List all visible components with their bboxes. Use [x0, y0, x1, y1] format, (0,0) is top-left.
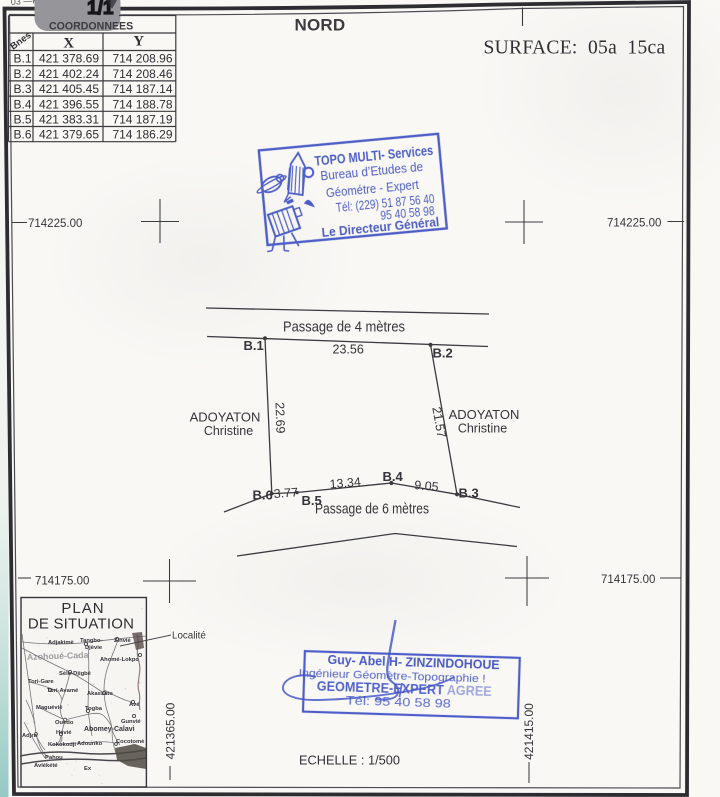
- svg-text:714175.00: 714175.00: [35, 576, 89, 588]
- svg-text:421415.00: 421415.00: [522, 703, 536, 760]
- svg-text:B.5: B.5: [302, 493, 322, 508]
- svg-text:421 383.31: 421 383.31: [39, 113, 99, 127]
- svg-text:Sèlo-Djigbé: Sèlo-Djigbé: [59, 671, 92, 677]
- svg-text:Tori-Avamé: Tori-Avamé: [47, 688, 79, 694]
- svg-text:SURFACE: 05a 15ca: SURFACE: 05a 15ca: [484, 38, 666, 59]
- svg-text:421 378.69: 421 378.69: [39, 52, 99, 66]
- svg-text:Adounko: Adounko: [77, 741, 103, 747]
- svg-text:Ouèdo: Ouèdo: [55, 720, 74, 726]
- svg-text:PLAN: PLAN: [61, 600, 104, 617]
- svg-text:Togba: Togba: [85, 706, 103, 712]
- svg-text:Adjakimè: Adjakimè: [48, 640, 75, 646]
- svg-text:X: X: [64, 36, 75, 52]
- svg-text:9.05: 9.05: [414, 478, 440, 494]
- svg-text:B.2: B.2: [14, 67, 32, 81]
- svg-text:Akassato: Akassato: [87, 691, 113, 697]
- svg-text:Ahomé-Lokpo: Ahomé-Lokpo: [100, 657, 139, 663]
- svg-text:ADOYATON: ADOYATON: [449, 407, 520, 422]
- svg-text:B.1: B.1: [14, 52, 32, 66]
- svg-text:Christine: Christine: [204, 424, 253, 438]
- svg-text:421 402.24: 421 402.24: [39, 67, 99, 81]
- svg-text:B.5: B.5: [14, 113, 32, 127]
- svg-text:B.3: B.3: [459, 486, 479, 501]
- svg-text:714 187.19: 714 187.19: [112, 113, 172, 127]
- svg-text:3.77: 3.77: [273, 485, 298, 501]
- svg-text:Y: Y: [134, 34, 145, 50]
- svg-text:ADOYATON: ADOYATON: [190, 410, 261, 425]
- svg-text:DE SITUATION: DE SITUATION: [28, 616, 134, 633]
- svg-text:22.69: 22.69: [272, 402, 287, 434]
- svg-text:714 188.78: 714 188.78: [112, 97, 172, 111]
- svg-text:714 187.14: 714 187.14: [112, 82, 172, 96]
- svg-text:421 396.55: 421 396.55: [39, 97, 99, 111]
- svg-text:Gunvié: Gunvié: [121, 719, 141, 725]
- svg-text:Hévié: Hévié: [56, 730, 72, 736]
- svg-text:Adjra: Adjra: [22, 733, 38, 739]
- svg-text:ECHELLE : 1/500: ECHELLE : 1/500: [299, 753, 400, 768]
- svg-text:NORD: NORD: [295, 16, 346, 35]
- svg-text:Christine: Christine: [458, 422, 507, 436]
- svg-text:13.34: 13.34: [329, 475, 361, 492]
- svg-text:714225.00: 714225.00: [607, 218, 661, 230]
- svg-text:714 208.96: 714 208.96: [112, 52, 172, 66]
- svg-text:B.3: B.3: [14, 82, 32, 96]
- svg-text:714 208.46: 714 208.46: [112, 67, 172, 81]
- svg-text:Kokokodji: Kokokodji: [48, 742, 76, 748]
- svg-text:714225.00: 714225.00: [28, 218, 82, 230]
- svg-text:B.4: B.4: [14, 97, 32, 111]
- svg-text:421365.00: 421365.00: [164, 702, 178, 759]
- svg-text:B.6: B.6: [14, 128, 32, 142]
- svg-text:Ex: Ex: [84, 766, 92, 772]
- svg-text:B.2: B.2: [433, 346, 453, 361]
- svg-text:Passage de 6 mètres: Passage de 6 mètres: [315, 502, 429, 518]
- svg-text:Cocotomè: Cocotomè: [116, 739, 145, 745]
- svg-text:421 405.45: 421 405.45: [39, 82, 99, 96]
- svg-text:Passage de 4 mètres: Passage de 4 mètres: [283, 319, 405, 336]
- svg-text:Abomey-Calavi: Abomey-Calavi: [84, 726, 135, 733]
- svg-text:421 379.65: 421 379.65: [39, 128, 99, 142]
- svg-text:23.56: 23.56: [333, 343, 364, 357]
- svg-text:Localité: Localité: [172, 631, 206, 642]
- svg-text:Maguévié: Maguévié: [36, 705, 63, 711]
- svg-text:Pahou: Pahou: [45, 755, 63, 761]
- svg-text:714175.00: 714175.00: [601, 574, 655, 586]
- svg-text:Zinvié: Zinvié: [114, 638, 132, 644]
- svg-text:Tangbo-: Tangbo-: [80, 638, 102, 644]
- svg-text:COORDONNEES: COORDONNEES: [49, 21, 133, 33]
- svg-text:B.4: B.4: [383, 469, 404, 484]
- svg-text:Avlékété: Avlékété: [34, 763, 58, 769]
- svg-text:Tori-Gare: Tori-Gare: [28, 679, 54, 685]
- svg-text:Avé: Avé: [129, 702, 140, 708]
- svg-text:B.6: B.6: [253, 488, 273, 503]
- svg-text:B.1: B.1: [244, 338, 264, 353]
- svg-text:714 186.29: 714 186.29: [112, 128, 172, 142]
